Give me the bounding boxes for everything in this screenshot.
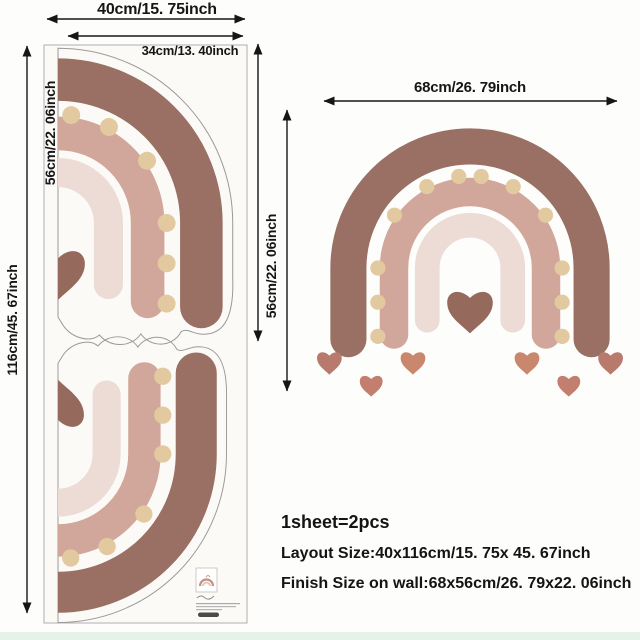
info-pieces-per-sheet: 1sheet=2pcs	[281, 512, 390, 533]
label-piece-width: 34cm/13. 40inch	[110, 43, 270, 58]
label-piece-height: 56cm/22. 06inch	[42, 63, 60, 203]
diagram-graphics	[0, 0, 640, 640]
info-finish-size: Finish Size on wall:68x56cm/26. 79x22. 0…	[281, 575, 631, 593]
info-layout-size: Layout Size:40x116cm/15. 75x 45. 67inch	[281, 545, 591, 563]
sticker-barcode	[198, 613, 219, 618]
label-sheet-width: 40cm/15. 75inch	[77, 1, 237, 19]
label-wall-height: 56cm/22. 06inch	[263, 196, 281, 336]
label-sheet-height: 116cm/45. 67inch	[4, 250, 22, 390]
assembled-rainbow	[317, 146, 623, 396]
product-dimension-diagram: 40cm/15. 75inch 34cm/13. 40inch 116cm/45…	[0, 0, 640, 640]
label-wall-width: 68cm/26. 79inch	[390, 79, 550, 96]
bottom-strip	[0, 632, 640, 640]
